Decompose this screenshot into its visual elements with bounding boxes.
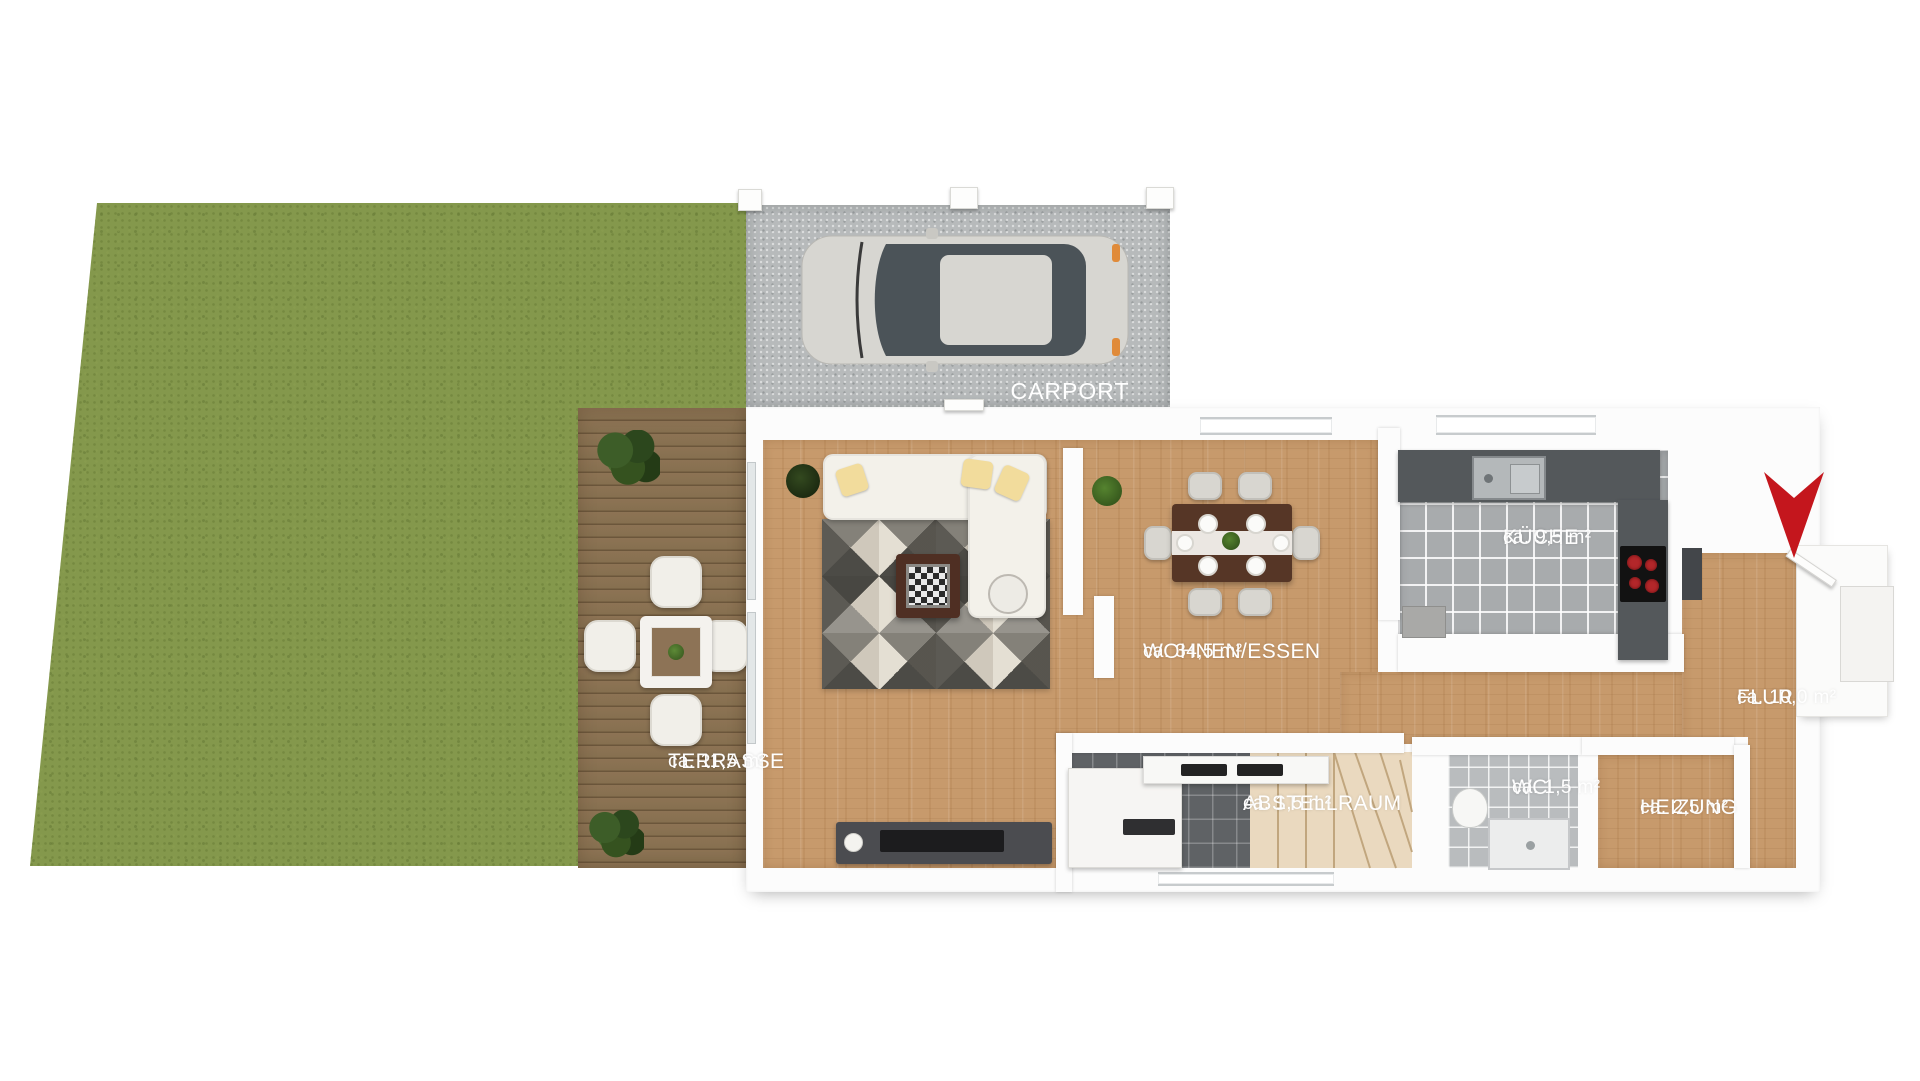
vase xyxy=(844,833,863,852)
carport-label: CARPORT xyxy=(1010,378,1129,404)
room-area: ca. 11,5 m² xyxy=(668,750,766,773)
entrance-arrow-icon xyxy=(1764,470,1824,558)
hallway-cabinet xyxy=(1682,548,1702,600)
room-area: ca. 1,5 m² xyxy=(1512,776,1600,799)
dining-chair xyxy=(1188,472,1222,500)
toilet xyxy=(1452,788,1488,828)
room-area: ca. 34,5 m² xyxy=(1143,640,1242,663)
room-area: ca. 1,5 m² xyxy=(1243,792,1331,815)
car-taillight xyxy=(1112,244,1120,262)
carport-post xyxy=(1146,187,1174,209)
kitchen-sink xyxy=(1472,456,1546,500)
cooktop xyxy=(1620,546,1666,602)
plate xyxy=(1198,556,1218,576)
burner xyxy=(1645,579,1659,593)
wall-living-stub xyxy=(1094,596,1114,678)
side-table xyxy=(988,574,1028,614)
coffee-table xyxy=(896,554,960,618)
plate xyxy=(1246,556,1266,576)
burner xyxy=(1629,577,1641,589)
shower-tray xyxy=(1488,818,1570,870)
entrance-wardrobe xyxy=(1840,586,1894,682)
car-roof xyxy=(940,255,1052,345)
carport-post xyxy=(950,187,978,209)
wall-wc-top xyxy=(1412,737,1582,755)
wall-kitchen-left xyxy=(1378,428,1400,620)
outdoor-chair xyxy=(584,620,636,672)
terrace-sliding-door xyxy=(747,612,756,744)
dining-chair xyxy=(1188,588,1222,616)
sink-basin xyxy=(1510,464,1540,494)
carport-post xyxy=(944,399,984,411)
table-centerpiece xyxy=(1222,532,1240,550)
burner xyxy=(1627,555,1642,570)
washer-panel xyxy=(1123,819,1175,835)
kitchen-cabinet xyxy=(1402,606,1446,638)
outdoor-chair xyxy=(650,694,702,746)
outdoor-table xyxy=(640,616,712,688)
vent-slot xyxy=(1181,764,1227,776)
shrub xyxy=(588,810,644,860)
window-south xyxy=(1158,872,1334,886)
plate xyxy=(1176,534,1194,552)
car xyxy=(800,228,1130,372)
window-dining xyxy=(1200,417,1332,435)
outdoor-chair xyxy=(650,556,702,608)
wall-heating-top xyxy=(1582,737,1734,755)
terrace-sliding-door xyxy=(747,462,756,600)
plate xyxy=(1198,514,1218,534)
dining-chair xyxy=(1144,526,1172,560)
outdoor-table-plant xyxy=(668,644,684,660)
potted-plant xyxy=(786,464,820,498)
tv xyxy=(880,830,1004,852)
storage-counter xyxy=(1143,756,1329,784)
window-kitchen xyxy=(1436,415,1596,435)
tv-sideboard xyxy=(836,822,1052,864)
pillow xyxy=(960,458,994,490)
room-area: ca. 10,0 m² xyxy=(1737,686,1836,709)
room-area: ca. 2,5 m² xyxy=(1640,796,1728,819)
car-mirror xyxy=(926,228,938,239)
burner xyxy=(1645,559,1657,571)
floor-plan: CARPORT TERRASSE ca. 11,5 m² WOHNEN/ESSE… xyxy=(0,0,1920,1081)
potted-plant xyxy=(1092,476,1122,506)
car-mirror xyxy=(926,361,938,372)
dining-chair xyxy=(1238,472,1272,500)
plate xyxy=(1272,534,1290,552)
wall-storage-top xyxy=(1056,733,1404,753)
wall-living-dining xyxy=(1063,448,1083,615)
dining-chair xyxy=(1238,588,1272,616)
shower-drain xyxy=(1526,841,1535,850)
shrub xyxy=(596,430,660,488)
car-taillight xyxy=(1112,338,1120,356)
coffee-table-top xyxy=(906,564,950,608)
dining-chair xyxy=(1292,526,1320,560)
plate xyxy=(1246,514,1266,534)
room-area: ca. 9,5 m² xyxy=(1503,526,1591,549)
carport-post xyxy=(738,189,762,211)
faucet xyxy=(1484,474,1493,483)
vent-slot xyxy=(1237,764,1283,776)
